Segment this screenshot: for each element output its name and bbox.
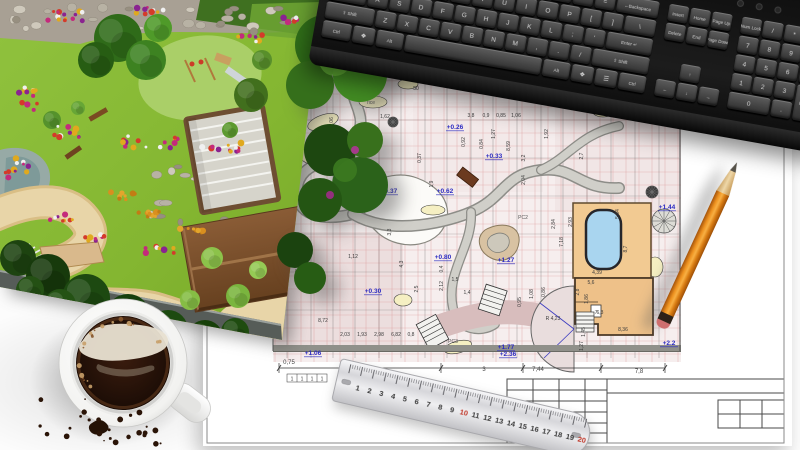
ruler-number: 3 <box>378 389 384 399</box>
ruler-tick <box>430 383 431 387</box>
dimension-label: 1,06 <box>511 113 521 119</box>
flower-dot <box>234 146 238 150</box>
ruler-tick <box>496 398 497 402</box>
dimension-label: 3,2 <box>521 154 527 161</box>
ruler-tick <box>494 398 495 402</box>
flower-dot <box>142 7 147 12</box>
flower-dot <box>236 35 240 39</box>
keyboard-key: H <box>475 8 498 28</box>
ruler-tick <box>423 381 424 385</box>
ruler-tick <box>396 375 398 384</box>
ruler-tick <box>517 403 518 407</box>
ruler-number: 1 <box>355 383 361 393</box>
flower-dot <box>87 234 93 240</box>
ones-label: 1 <box>311 377 314 383</box>
stone <box>125 7 133 11</box>
ruler-tick <box>442 386 443 390</box>
keyboard-led <box>774 6 782 14</box>
flower-dot <box>77 136 80 139</box>
crumb <box>97 431 103 437</box>
crumb <box>38 424 41 427</box>
keyboard-key: . <box>547 40 570 60</box>
keyboard-key: M <box>504 33 527 53</box>
stone <box>88 17 98 21</box>
flower-dot <box>80 10 85 15</box>
keyboard-key: 5 <box>755 58 778 78</box>
stone <box>217 21 225 27</box>
keyboard-key: Alt <box>375 29 404 50</box>
coffee-bubble <box>133 324 135 326</box>
ruler-tick <box>383 372 384 376</box>
flower-dot <box>123 194 126 197</box>
crumb <box>153 441 159 447</box>
stone <box>180 173 191 178</box>
keyboard-key: 8 <box>758 39 781 59</box>
dimension-label: 3,8 <box>468 113 475 119</box>
dimension-label: 0,86 <box>541 287 547 297</box>
flower-dot <box>73 125 80 132</box>
coffee-crumbs <box>30 393 190 450</box>
stone <box>250 28 258 36</box>
ruler-tick <box>549 411 551 420</box>
flower-dot <box>48 218 52 222</box>
flower-dot <box>145 146 148 149</box>
crumb <box>142 433 146 437</box>
dimension-label: 1,27 <box>579 341 585 351</box>
ruler-tick <box>526 405 528 414</box>
flower-dot <box>130 144 136 150</box>
dimension-label: 2,04 <box>521 175 527 185</box>
flower-dot <box>102 234 107 239</box>
ones-label: 1 <box>321 377 324 383</box>
keyboard-key: Alt <box>542 59 571 80</box>
flower-dot <box>254 40 257 43</box>
ruler-tick <box>564 414 565 418</box>
flower-dot <box>192 227 195 230</box>
tree-cluster-mid <box>298 122 388 222</box>
keyboard-key: End <box>685 26 708 46</box>
stone <box>23 26 29 32</box>
keyboard-key: Ctrl <box>321 20 352 42</box>
keyboard-key: Delete <box>664 22 687 42</box>
flower-dot <box>74 13 78 17</box>
ruler-tick <box>520 404 521 408</box>
ones-label: 1 <box>301 377 304 383</box>
keyboard-key: C <box>417 18 440 38</box>
bottom-dimension: 7,8 <box>635 369 644 375</box>
flower-dot <box>119 190 124 195</box>
ruler-tick <box>555 412 556 416</box>
flower-dot <box>61 219 65 223</box>
ruler-tick <box>560 413 561 417</box>
flower-dot <box>31 88 37 94</box>
crumb <box>109 437 112 440</box>
keyboard-key: / <box>761 20 784 40</box>
ruler-tick <box>451 388 452 392</box>
flower-dot <box>195 228 200 233</box>
crumb <box>152 427 158 433</box>
flower-dot <box>177 226 183 232</box>
ruler-tick <box>546 410 547 414</box>
ruler-tick <box>510 401 511 405</box>
keyboard-key: ❖ <box>351 25 376 46</box>
flower-dot <box>126 134 130 138</box>
ruler-tick <box>487 396 488 400</box>
keyboard-key: → <box>697 86 720 106</box>
tree-shade <box>228 128 237 137</box>
dimension-label: 0,8 <box>408 332 415 338</box>
ruler-number: 15 <box>518 421 528 432</box>
ruler-tick <box>524 405 525 409</box>
tree-shade <box>231 329 246 344</box>
flower-dot <box>24 101 30 107</box>
ruler-number: 2 <box>367 386 373 396</box>
flower-dot <box>52 133 57 138</box>
ruler-tick <box>392 374 393 378</box>
stone <box>98 4 108 13</box>
flower-dot <box>62 211 68 217</box>
stone <box>44 9 51 14</box>
crumb <box>160 442 162 444</box>
ruler-tick <box>484 395 485 399</box>
ruler-tick <box>414 379 415 383</box>
keyboard-keys: `1234567890-=←BackspaceTabQWERTYUIOP[]\C… <box>334 0 800 13</box>
ruler-tick <box>418 380 419 384</box>
keyboard-key: I <box>515 0 538 16</box>
flower-dot <box>136 138 141 143</box>
dimension-label: 0,84 <box>479 139 485 149</box>
keyboard-key: K <box>518 16 541 36</box>
flower-dot <box>247 34 251 38</box>
ruler-tick <box>553 411 554 415</box>
keyboard-key: Page Up <box>710 11 733 31</box>
dimension-label: 1,45 <box>581 327 587 337</box>
crumb <box>64 433 70 439</box>
flower-dot <box>187 227 190 230</box>
coffee-bubble <box>91 335 94 338</box>
crumb <box>137 410 143 416</box>
crumb <box>146 426 148 428</box>
ruler-tick <box>388 373 389 377</box>
keyboard-key: 3 <box>773 80 796 100</box>
ruler-number: 7 <box>425 400 431 410</box>
dimension-label: 1,93 <box>357 332 367 338</box>
crumb <box>68 427 71 430</box>
ruler-tick <box>489 396 490 400</box>
flower-dot <box>156 10 159 13</box>
ruler-tick <box>585 419 587 428</box>
coffee-bubble <box>100 324 104 328</box>
flower-dot <box>22 163 25 166</box>
coffee-bubble <box>119 317 124 322</box>
coffee-bubble <box>83 347 85 349</box>
stone <box>67 3 77 11</box>
dimension-label: 0,9 <box>483 113 490 119</box>
flower-dot <box>13 155 19 161</box>
ruler-tick <box>425 382 426 386</box>
ruler-number: 17 <box>541 426 551 437</box>
flower-dot <box>238 140 245 147</box>
elevation-label: +1.27 <box>498 257 515 264</box>
ruler-tick <box>583 418 584 422</box>
ruler-tick <box>470 392 471 396</box>
coffee-bubble <box>79 373 84 378</box>
keyboard-key: 1 <box>730 73 753 93</box>
keyboard-key: Z <box>374 10 397 30</box>
ruler-tick <box>399 376 400 380</box>
flower-dot <box>6 175 12 181</box>
flower-dot <box>45 18 50 23</box>
tree-shade <box>234 293 247 306</box>
flower-dot <box>171 246 175 250</box>
keyboard-led <box>755 3 763 11</box>
flower-dot <box>210 145 214 149</box>
coffee-bubble <box>156 340 159 343</box>
crumb <box>84 398 86 400</box>
ruler-tick <box>572 416 573 420</box>
crumb <box>108 428 111 431</box>
ruler-tick <box>573 416 575 425</box>
flower-dot <box>117 197 121 201</box>
tree-shade <box>209 255 221 267</box>
flower-dot <box>57 17 61 21</box>
ruler-tick <box>482 395 483 399</box>
ruler-tick <box>366 368 367 372</box>
keyboard-key: . <box>770 99 793 119</box>
ruler-number: 13 <box>494 415 504 426</box>
stone <box>168 167 175 175</box>
flower-dot <box>35 102 39 106</box>
flower-dot <box>52 10 55 13</box>
flower-dot <box>216 147 222 153</box>
ruler-number: 10 <box>459 407 469 418</box>
flower-dot <box>71 17 75 21</box>
flower-dot <box>236 149 240 153</box>
keyboard-key: ] <box>602 11 625 31</box>
ruler-tick <box>355 365 356 369</box>
keyboard-key: Insert <box>667 4 690 24</box>
ruler-tick <box>478 394 480 403</box>
crumb <box>129 414 132 417</box>
keyboard-key: ; <box>561 24 584 44</box>
keyboard-led <box>736 0 744 7</box>
ruler-tick <box>408 378 410 387</box>
flower-dot <box>227 144 230 147</box>
crumb <box>96 417 101 422</box>
ruler-tick <box>561 413 563 422</box>
stone <box>183 19 195 28</box>
bottom-dimension: 0,75 <box>283 360 295 366</box>
flower-dot <box>124 198 128 202</box>
keyboard-key: F <box>431 1 454 21</box>
coffee-bubble <box>88 385 92 389</box>
flower-dot <box>147 212 151 216</box>
ruler-number: 5 <box>402 394 408 404</box>
ruler-number: 14 <box>506 418 517 429</box>
keyboard-key: ☰ <box>594 68 619 89</box>
elevation-label: +1.44 <box>659 204 676 211</box>
dimension-label: 2,7 <box>579 152 585 159</box>
flower-dot <box>158 247 161 250</box>
keyboard-key: U <box>493 0 516 13</box>
keyboard-key: 6 <box>777 62 800 82</box>
flower-dot <box>94 237 98 241</box>
dimension-label: 4,39 <box>592 270 602 276</box>
crumb <box>81 409 86 414</box>
ruler-tick <box>502 400 504 409</box>
ruler-tick <box>531 406 532 410</box>
flower-dot <box>56 134 62 140</box>
dimension-label: 2,93 <box>568 217 574 227</box>
keyboard-key: Page Down <box>707 30 730 50</box>
ruler-tick <box>477 394 478 398</box>
misc-label: PC2 <box>518 215 528 221</box>
coffee-bubble <box>127 321 132 326</box>
dimension-label: 0,85 <box>496 113 506 119</box>
ruler-tick <box>473 393 474 397</box>
flower-dot <box>137 210 141 214</box>
dimension-label: R 4,23 <box>546 316 561 322</box>
dimension-label: 0,95 <box>517 297 523 307</box>
ones-label: 1 <box>291 377 294 383</box>
flower-dot <box>80 18 85 23</box>
misc-label: 7 <box>595 310 598 316</box>
stone <box>221 15 233 21</box>
ruler-tick <box>463 391 464 395</box>
tree-shade <box>76 106 84 114</box>
flower-dot <box>56 125 59 128</box>
ruler-tick <box>428 382 429 386</box>
ruler-tick <box>357 366 358 370</box>
flower-dot <box>24 169 29 174</box>
coffee-bubble <box>83 379 85 381</box>
flower-dot <box>143 12 148 17</box>
flower-dot <box>163 140 167 144</box>
keyboard-key: 7 <box>737 35 760 55</box>
stone <box>196 22 206 29</box>
ruler-tick <box>449 387 450 391</box>
flower-dot <box>130 190 136 196</box>
ruler-tick <box>537 408 539 417</box>
crumb <box>103 440 105 442</box>
flower-dot <box>24 90 29 95</box>
flower-dot <box>120 139 126 145</box>
ruler-tick <box>475 393 476 397</box>
ruler-tick <box>569 415 570 419</box>
ruler-tick <box>369 369 370 373</box>
ruler-tick <box>371 369 372 373</box>
ruler-tick <box>513 402 514 406</box>
elevation-label: +0.33 <box>486 153 503 160</box>
flower-dot <box>228 149 232 153</box>
keyboard-key: ↓ <box>675 82 698 102</box>
ruler-tick <box>506 400 507 404</box>
flower-dot <box>108 189 114 195</box>
ruler-tick <box>557 412 558 416</box>
ruler-tick <box>395 375 396 379</box>
ruler-tick <box>567 414 568 418</box>
crumb <box>117 417 123 423</box>
ruler-tick <box>508 401 509 405</box>
dimension-label: 1,5 <box>452 277 459 283</box>
flower-dot <box>4 171 7 174</box>
ruler-tick <box>541 408 542 412</box>
ruler-number: 20 <box>577 434 587 445</box>
keyboard-key: , <box>526 37 549 57</box>
ruler-tick <box>416 380 417 384</box>
ruler-tick <box>447 387 448 391</box>
dimension-label: 1,92 <box>544 129 550 139</box>
stone <box>13 5 25 13</box>
ruler-tick <box>431 383 433 392</box>
tree-shade <box>154 25 169 40</box>
coffee-bubble <box>87 380 89 382</box>
flower-dot <box>65 124 71 130</box>
crumb <box>113 439 119 445</box>
ruler-tick <box>372 370 374 379</box>
crumb <box>88 418 91 421</box>
ruler-tick <box>529 406 530 410</box>
elevation-label: +0.26 <box>447 124 464 131</box>
coffee-bubble <box>94 330 96 332</box>
crumb <box>39 397 44 402</box>
crumb <box>126 435 131 440</box>
stone <box>178 219 183 226</box>
ruler-tick <box>390 374 391 378</box>
dimension-label: 5,6 <box>588 280 595 286</box>
flower-dot <box>32 108 36 112</box>
keyboard-key: D <box>410 0 433 17</box>
ruler-tick <box>576 417 577 421</box>
dimension-label: 8,7 <box>623 245 629 252</box>
dimension-label: 8,59 <box>506 141 512 151</box>
keyboard-key: X <box>396 14 419 34</box>
ruler-tick <box>364 368 365 372</box>
flower-dot <box>173 136 177 140</box>
ruler-tick <box>411 379 412 383</box>
flower-dot <box>172 140 178 146</box>
dimension-label: 0,92 <box>461 137 467 147</box>
flower-dot <box>158 145 163 150</box>
flower-dot <box>254 35 258 39</box>
ruler-tick <box>548 410 549 414</box>
ruler-tick <box>440 385 441 389</box>
flower-dot <box>143 250 149 256</box>
ruler-tick <box>534 407 535 411</box>
ruler-tick <box>467 392 469 401</box>
crumb <box>79 415 82 418</box>
stone <box>159 200 172 206</box>
ruler-tick <box>352 365 353 369</box>
flower-dot <box>15 161 19 165</box>
flower-dot <box>144 246 148 250</box>
bottom-dimension: 7,44 <box>532 367 544 373</box>
keyboard-key: 9 <box>780 43 800 63</box>
ruler-tick <box>536 407 537 411</box>
stone <box>224 8 232 15</box>
keyboard-key: / <box>569 44 592 64</box>
crumb <box>45 432 50 437</box>
keyboard-key: J <box>496 12 519 32</box>
ruler-tick <box>465 391 466 395</box>
flower-dot <box>168 145 173 150</box>
stone <box>238 14 246 20</box>
ruler-tick <box>349 364 351 373</box>
keyboard-key: ← <box>654 79 677 99</box>
flower-dot <box>68 131 72 135</box>
dimension-label: 1,27 <box>491 129 497 139</box>
dimension-label: 6,82 <box>391 332 401 338</box>
